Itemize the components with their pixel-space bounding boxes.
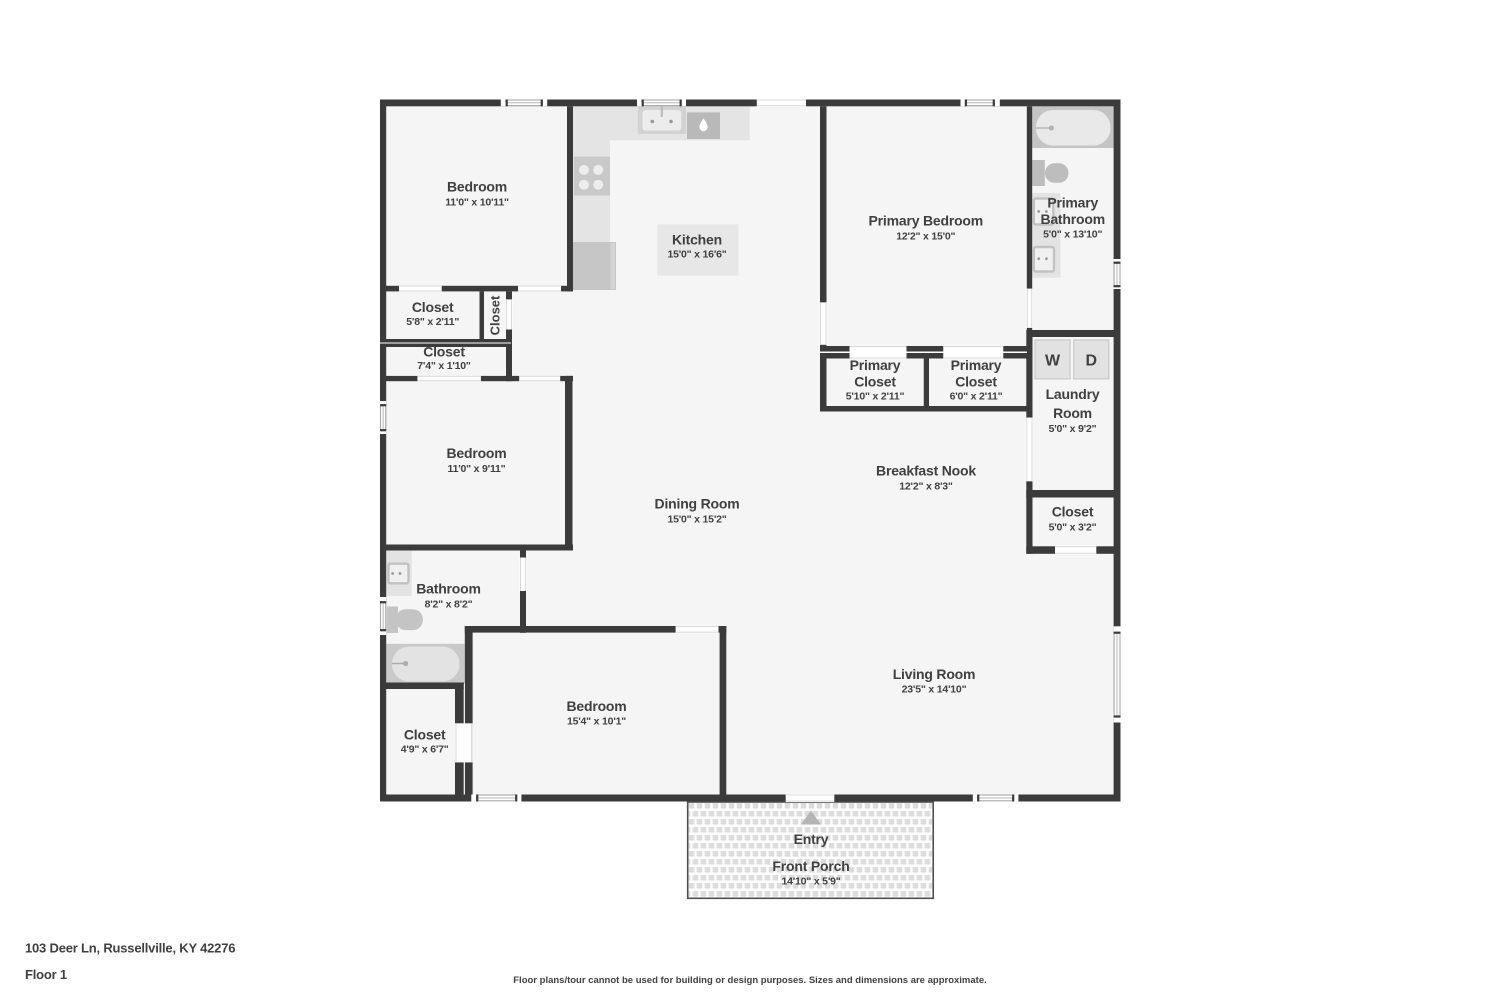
svg-text:Closet: Closet [404, 727, 446, 743]
svg-text:5'0" x 9'2": 5'0" x 9'2" [1049, 423, 1097, 435]
svg-text:Entry: Entry [794, 831, 829, 847]
svg-text:Closet: Closet [423, 344, 465, 360]
svg-text:12'2" x 15'0": 12'2" x 15'0" [896, 231, 955, 243]
svg-text:12'2" x 8'3": 12'2" x 8'3" [899, 480, 953, 492]
svg-text:6'0" x 2'11": 6'0" x 2'11" [950, 391, 1003, 403]
svg-text:Closet: Closet [955, 373, 997, 389]
svg-text:Primary: Primary [951, 357, 1002, 373]
svg-text:103 Deer Ln, Russellville, KY: 103 Deer Ln, Russellville, KY 42276 [25, 941, 235, 956]
svg-text:Room: Room [1053, 405, 1092, 421]
svg-text:Closet: Closet [1052, 504, 1094, 520]
svg-text:14'10" x 5'9": 14'10" x 5'9" [781, 876, 840, 888]
svg-text:W: W [1045, 353, 1061, 370]
svg-text:Bedroom: Bedroom [446, 445, 506, 461]
svg-text:5'8" x 2'11": 5'8" x 2'11" [406, 316, 459, 328]
svg-text:Dining Room: Dining Room [655, 495, 740, 511]
svg-text:Closet: Closet [412, 299, 454, 315]
svg-text:15'4" x 10'1": 15'4" x 10'1" [567, 715, 626, 727]
svg-text:Primary Bedroom: Primary Bedroom [869, 212, 983, 228]
svg-text:15'0" x 15'2": 15'0" x 15'2" [667, 514, 726, 526]
svg-text:11'0" x 10'11": 11'0" x 10'11" [445, 197, 509, 209]
svg-text:Floor 1: Floor 1 [25, 967, 67, 982]
svg-text:23'5" x 14'10": 23'5" x 14'10" [902, 684, 967, 696]
svg-text:Bedroom: Bedroom [447, 179, 507, 195]
svg-text:5'0" x 13'10": 5'0" x 13'10" [1043, 229, 1102, 241]
svg-text:Primary: Primary [850, 357, 901, 373]
svg-text:5'10" x 2'11": 5'10" x 2'11" [846, 391, 905, 403]
svg-text:11'0" x 9'11": 11'0" x 9'11" [448, 463, 506, 475]
svg-text:Laundry: Laundry [1046, 386, 1100, 402]
svg-text:Bathroom: Bathroom [416, 580, 481, 596]
svg-text:Floor plans/tour cannot be use: Floor plans/tour cannot be used for buil… [513, 975, 987, 986]
svg-text:Closet: Closet [854, 373, 896, 389]
svg-text:Breakfast Nook: Breakfast Nook [876, 462, 976, 478]
svg-text:Kitchen: Kitchen [672, 231, 722, 247]
svg-text:Bedroom: Bedroom [566, 698, 626, 714]
svg-text:Front Porch: Front Porch [772, 858, 849, 874]
svg-text:7'4" x 1'10": 7'4" x 1'10" [417, 360, 471, 372]
svg-text:Primary: Primary [1047, 195, 1098, 211]
svg-text:8'2" x 8'2": 8'2" x 8'2" [425, 598, 473, 610]
svg-text:5'0" x 3'2": 5'0" x 3'2" [1049, 521, 1097, 533]
svg-text:Bathroom: Bathroom [1040, 211, 1105, 227]
svg-text:Closet: Closet [488, 295, 503, 335]
svg-text:4'9" x 6'7": 4'9" x 6'7" [401, 744, 449, 756]
svg-text:D: D [1086, 353, 1098, 370]
svg-text:15'0" x 16'6": 15'0" x 16'6" [667, 249, 726, 261]
svg-text:Living Room: Living Room [893, 666, 976, 682]
